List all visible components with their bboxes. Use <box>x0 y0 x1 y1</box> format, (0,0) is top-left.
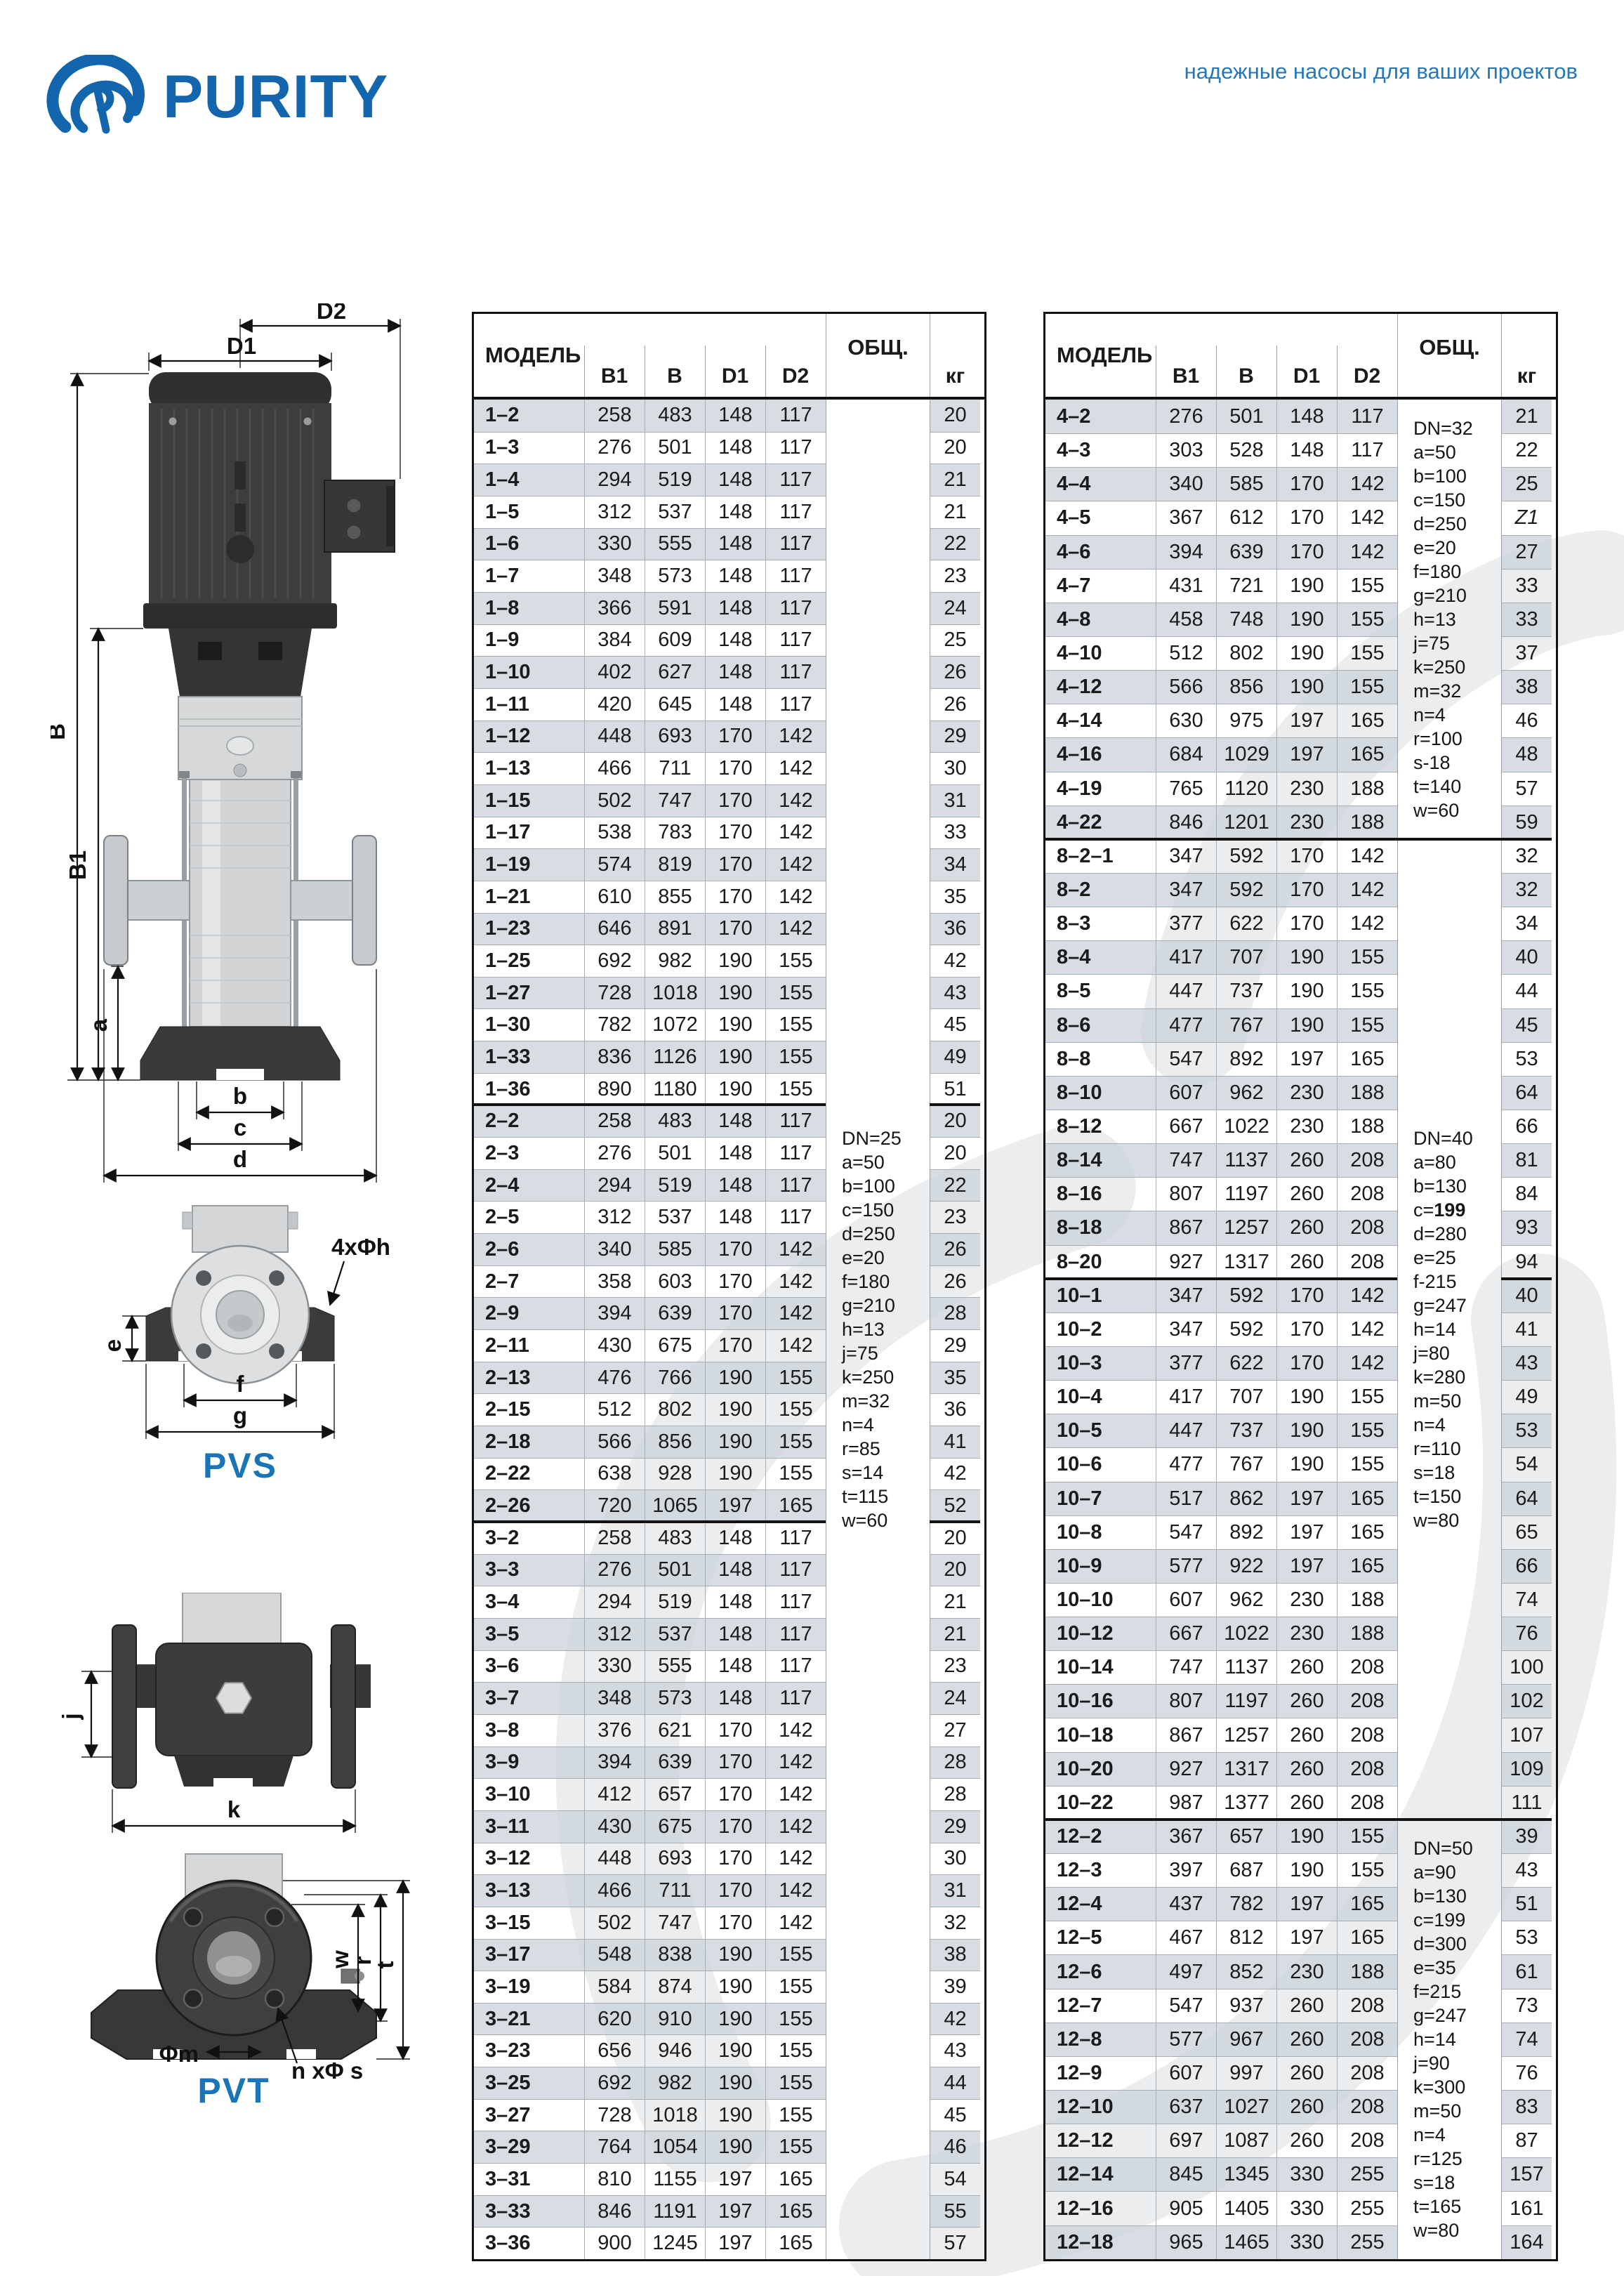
b-cell: 675 <box>645 1329 705 1362</box>
d1-cell: 190 <box>705 945 765 977</box>
d1-cell: 148 <box>1276 433 1337 467</box>
kg-cell: 24 <box>930 1682 980 1714</box>
d2-cell: 155 <box>765 945 826 977</box>
kg-cell: 42 <box>930 1458 980 1490</box>
b1-cell: 347 <box>1156 1279 1216 1313</box>
kg-cell: 49 <box>1501 1380 1552 1414</box>
d2-cell: 155 <box>1337 1853 1397 1887</box>
b-cell: 874 <box>645 1971 705 2003</box>
b-cell: 747 <box>645 1907 705 1939</box>
model-cell: 3–2 <box>474 1522 584 1554</box>
model-cell: 10–2 <box>1045 1313 1156 1346</box>
b-cell: 982 <box>645 2067 705 2099</box>
d2-cell: 155 <box>765 1939 826 1971</box>
model-cell: 8–10 <box>1045 1076 1156 1110</box>
d2-cell: 142 <box>765 1778 826 1810</box>
kg-cell: 35 <box>930 881 980 913</box>
common-dim-line: c=199 <box>1413 1908 1473 1932</box>
d2-cell: 142 <box>765 721 826 753</box>
model-cell: 3–5 <box>474 1618 584 1650</box>
b-cell: 1072 <box>645 1008 705 1041</box>
pvs-dim-label-e: e <box>100 1339 126 1352</box>
b-cell: 1377 <box>1216 1786 1276 1820</box>
model-cell: 12–14 <box>1045 2157 1156 2191</box>
model-cell: 4–7 <box>1045 569 1156 603</box>
d2-cell: 155 <box>765 2003 826 2035</box>
d1-cell: 170 <box>705 1747 765 1779</box>
d2-cell: 188 <box>1337 772 1397 805</box>
model-cell: 12–9 <box>1045 2056 1156 2090</box>
kg-cell: 66 <box>1501 1110 1552 1143</box>
b-cell: 483 <box>645 400 705 432</box>
model-cell: 3–4 <box>474 1586 584 1618</box>
kg-cell: 43 <box>1501 1853 1552 1887</box>
purity-logo: PURITY <box>44 55 388 139</box>
b-cell: 555 <box>645 528 705 560</box>
b1-cell: 638 <box>584 1458 645 1490</box>
b-cell: 609 <box>645 624 705 657</box>
common-dim-line: DN=50 <box>1413 1836 1473 1860</box>
d2-cell: 155 <box>1337 603 1397 636</box>
d2-cell: 117 <box>765 496 826 528</box>
d2-cell: 255 <box>1337 2157 1397 2191</box>
kg-cell: 100 <box>1501 1650 1552 1684</box>
b-cell: 1257 <box>1216 1211 1276 1244</box>
kg-cell: 20 <box>930 1522 980 1554</box>
kg-cell: 55 <box>930 2195 980 2228</box>
d1-cell: 170 <box>705 784 765 817</box>
kg-cell: 27 <box>930 1714 980 1747</box>
common-dim-line: d=280 <box>1413 1222 1473 1246</box>
b-cell: 1018 <box>645 2099 705 2131</box>
d2-cell: 208 <box>1337 2090 1397 2124</box>
d2-cell: 208 <box>1337 1786 1397 1820</box>
model-cell: 4–14 <box>1045 704 1156 737</box>
model-cell: 10–3 <box>1045 1346 1156 1380</box>
common-dim-line: a=50 <box>1413 440 1473 464</box>
kg-cell: 23 <box>930 1201 980 1233</box>
model-cell: 12–5 <box>1045 1921 1156 1954</box>
b1-cell: 258 <box>584 1522 645 1554</box>
d1-cell: 170 <box>1276 873 1337 907</box>
kg-cell: 28 <box>930 1747 980 1779</box>
common-dim-line: n=4 <box>1413 2123 1473 2147</box>
b-cell: 1054 <box>645 2131 705 2163</box>
d2-cell: 255 <box>1337 2225 1397 2259</box>
b-cell: 1022 <box>1216 1110 1276 1143</box>
d1-cell: 170 <box>705 817 765 849</box>
kg-cell: 74 <box>1501 2022 1552 2056</box>
b1-cell: 867 <box>1156 1211 1216 1244</box>
common-dim-line: j=90 <box>1413 2051 1473 2075</box>
kg-cell: 20 <box>930 1137 980 1169</box>
b-cell: 975 <box>1216 704 1276 737</box>
col-header-b1: B1 <box>584 314 645 397</box>
model-cell: 10–1 <box>1045 1279 1156 1313</box>
model-cell: 8–6 <box>1045 1008 1156 1042</box>
b1-cell: 728 <box>584 977 645 1009</box>
b1-cell: 276 <box>584 1554 645 1586</box>
model-cell: 8–16 <box>1045 1177 1156 1211</box>
common-dim-line: w=60 <box>842 1508 902 1532</box>
d2-cell: 155 <box>765 2034 826 2067</box>
d1-cell: 330 <box>1276 2191 1337 2225</box>
d2-cell: 142 <box>765 1747 826 1779</box>
d1-cell: 230 <box>1276 805 1337 839</box>
b-cell: 747 <box>645 784 705 817</box>
b1-cell: 747 <box>1156 1650 1216 1684</box>
kg-cell: 20 <box>930 400 980 432</box>
d2-cell: 188 <box>1337 1076 1397 1110</box>
kg-cell: 43 <box>1501 1346 1552 1380</box>
model-cell: 1–3 <box>474 432 584 464</box>
common-dim-line: s=14 <box>842 1461 902 1485</box>
d2-cell: 208 <box>1337 1718 1397 1751</box>
common-dim-line: DN=25 <box>842 1126 902 1150</box>
d2-cell: 155 <box>1337 1380 1397 1414</box>
model-cell: 12–6 <box>1045 1954 1156 1988</box>
d2-cell: 142 <box>1337 1313 1397 1346</box>
pvt-title: PVT <box>197 2071 270 2110</box>
kg-cell: 29 <box>930 1329 980 1362</box>
col-header-d1: D1 <box>705 314 765 397</box>
b-cell: 537 <box>645 1201 705 1233</box>
d2-cell: 155 <box>765 1393 826 1426</box>
d1-cell: 148 <box>705 1650 765 1683</box>
b1-cell: 303 <box>1156 433 1216 467</box>
model-cell: 1–9 <box>474 624 584 657</box>
b-cell: 1120 <box>1216 772 1276 805</box>
d1-cell: 197 <box>705 1489 765 1522</box>
pvs-dim-label-b-total: B <box>51 723 70 740</box>
kg-cell: 61 <box>1501 1954 1552 1988</box>
b1-cell: 276 <box>584 1137 645 1169</box>
kg-cell: 54 <box>1501 1447 1552 1481</box>
d1-cell: 190 <box>705 2131 765 2163</box>
common-dim-line: k=250 <box>1413 655 1473 679</box>
d2-cell: 165 <box>1337 737 1397 771</box>
common-dim-line: t=115 <box>842 1485 902 1508</box>
b1-cell: 577 <box>1156 2022 1216 2056</box>
model-cell: 10–14 <box>1045 1650 1156 1684</box>
brand-tagline: надежные насосы для ваших проектов <box>1184 59 1578 84</box>
b1-cell: 477 <box>1156 1447 1216 1481</box>
d2-cell: 155 <box>1337 1008 1397 1042</box>
common-dim-line: a=50 <box>842 1150 902 1174</box>
model-cell: 4–3 <box>1045 433 1156 467</box>
d1-cell: 190 <box>705 2034 765 2067</box>
col-header-b: B <box>645 314 705 397</box>
d2-cell: 117 <box>765 560 826 592</box>
d1-cell: 148 <box>705 688 765 721</box>
kg-cell: 33 <box>930 817 980 849</box>
d2-cell: 117 <box>765 1522 826 1554</box>
b-cell: 693 <box>645 1843 705 1875</box>
model-cell: 1–2 <box>474 400 584 432</box>
d2-cell: 155 <box>1337 974 1397 1008</box>
b1-cell: 577 <box>1156 1549 1216 1583</box>
b-cell: 967 <box>1216 2022 1276 2056</box>
d2-cell: 117 <box>765 1201 826 1233</box>
d1-cell: 170 <box>705 721 765 753</box>
model-cell: 8–8 <box>1045 1042 1156 1076</box>
d1-cell: 148 <box>705 1682 765 1714</box>
b-cell: 1029 <box>1216 737 1276 771</box>
b-cell: 483 <box>645 1105 705 1137</box>
d2-cell: 142 <box>765 913 826 945</box>
model-cell: 2–5 <box>474 1201 584 1233</box>
kg-cell: 26 <box>930 656 980 688</box>
common-dim-line: f=180 <box>1413 560 1473 584</box>
d1-cell: 190 <box>705 977 765 1009</box>
b-cell: 1465 <box>1216 2225 1276 2259</box>
d2-cell: 142 <box>1337 535 1397 569</box>
d1-cell: 190 <box>705 2003 765 2035</box>
b-cell: 962 <box>1216 1076 1276 1110</box>
common-dim-line: w=80 <box>1413 2218 1473 2242</box>
common-dim-line: a=80 <box>1413 1150 1473 1174</box>
d2-cell: 142 <box>765 1233 826 1265</box>
d2-cell: 208 <box>1337 2124 1397 2157</box>
common-dim-line: c=150 <box>1413 488 1473 512</box>
d2-cell: 188 <box>1337 1617 1397 1650</box>
b-cell: 519 <box>645 1169 705 1202</box>
d1-cell: 230 <box>1276 1617 1337 1650</box>
b1-cell: 747 <box>1156 1143 1216 1177</box>
kg-cell: 40 <box>1501 940 1552 974</box>
model-cell: 1–36 <box>474 1073 584 1105</box>
model-cell: 3–29 <box>474 2131 584 2163</box>
common-dim-line: w=60 <box>1413 798 1473 822</box>
d2-cell: 142 <box>1337 1346 1397 1380</box>
model-cell: 1–19 <box>474 848 584 881</box>
b1-cell: 502 <box>584 784 645 817</box>
d1-cell: 148 <box>705 1618 765 1650</box>
b-cell: 937 <box>1216 1989 1276 2022</box>
d1-cell: 148 <box>705 1105 765 1137</box>
common-dim-line: e=20 <box>1413 536 1473 560</box>
section-separator <box>1045 838 1552 841</box>
d1-cell: 190 <box>1276 1414 1337 1447</box>
b1-cell: 437 <box>1156 1887 1216 1921</box>
model-cell: 3–10 <box>474 1778 584 1810</box>
table-header-row: МОДЕЛЬB1BD1D2ОБЩ.кг <box>1045 314 1556 400</box>
b1-cell: 620 <box>584 2003 645 2035</box>
col-header-common: ОБЩ. <box>1397 314 1501 397</box>
b1-cell: 347 <box>1156 839 1216 873</box>
kg-cell: 38 <box>1501 670 1552 704</box>
model-cell: 2–22 <box>474 1458 584 1490</box>
dimensions-table-pvt-series: МОДЕЛЬB1BD1D2ОБЩ.кг4–2276501148117214–33… <box>1043 312 1558 2261</box>
d1-cell: 148 <box>705 1586 765 1618</box>
d1-cell: 190 <box>1276 974 1337 1008</box>
b1-cell: 566 <box>584 1426 645 1458</box>
kg-cell: 51 <box>1501 1887 1552 1921</box>
d1-cell: 230 <box>1276 772 1337 805</box>
d2-cell: 188 <box>1337 1583 1397 1617</box>
b1-cell: 347 <box>1156 873 1216 907</box>
b-cell: 767 <box>1216 1008 1276 1042</box>
b1-cell: 258 <box>584 400 645 432</box>
pvs-dim-label-holes: 4xΦh <box>331 1234 390 1260</box>
kg-cell: 24 <box>930 592 980 624</box>
kg-cell: 29 <box>930 1810 980 1843</box>
b-cell: 585 <box>1216 467 1276 501</box>
b1-cell: 294 <box>584 1586 645 1618</box>
b1-cell: 394 <box>584 1747 645 1779</box>
d1-cell: 190 <box>1276 603 1337 636</box>
model-cell: 12–12 <box>1045 2124 1156 2157</box>
d1-cell: 148 <box>705 1137 765 1169</box>
d2-cell: 155 <box>1337 940 1397 974</box>
b1-cell: 667 <box>1156 1110 1216 1143</box>
model-cell: 10–4 <box>1045 1380 1156 1414</box>
kg-cell: 87 <box>1501 2124 1552 2157</box>
d1-cell: 197 <box>1276 1887 1337 1921</box>
d2-cell: 117 <box>765 1682 826 1714</box>
model-cell: 8–14 <box>1045 1143 1156 1177</box>
d1-cell: 260 <box>1276 2056 1337 2090</box>
d2-cell: 208 <box>1337 2056 1397 2090</box>
common-dim-line: m=32 <box>1413 679 1473 703</box>
kg-cell: 94 <box>1501 1245 1552 1279</box>
d2-cell: 165 <box>765 2163 826 2195</box>
d2-cell: 208 <box>1337 1650 1397 1684</box>
b1-cell: 340 <box>1156 467 1216 501</box>
common-dim-line: s-18 <box>1413 751 1473 775</box>
model-cell: 3–6 <box>474 1650 584 1683</box>
d1-cell: 190 <box>1276 636 1337 670</box>
common-dim-line: m=50 <box>1413 1389 1473 1413</box>
b1-cell: 547 <box>1156 1989 1216 2022</box>
kg-cell: 37 <box>1501 636 1552 670</box>
d1-cell: 230 <box>1276 1954 1337 1988</box>
d2-cell: 155 <box>765 1458 826 1490</box>
d1-cell: 197 <box>705 2163 765 2195</box>
d2-cell: 117 <box>765 688 826 721</box>
common-dim-line: r=85 <box>842 1437 902 1461</box>
b-cell: 862 <box>1216 1482 1276 1515</box>
model-cell: 1–33 <box>474 1041 584 1073</box>
b1-cell: 900 <box>584 2227 645 2259</box>
kg-cell: 39 <box>1501 1820 1552 1853</box>
d2-cell: 208 <box>1337 1245 1397 1279</box>
col-header-model: МОДЕЛЬ <box>1045 314 1156 397</box>
common-dim-line: g=247 <box>1413 1294 1473 1317</box>
b-cell: 891 <box>645 913 705 945</box>
col-header-common: ОБЩ. <box>826 314 930 397</box>
pvt-dim-label-holes: n xΦ s <box>291 2058 363 2084</box>
model-cell: 1–5 <box>474 496 584 528</box>
b-cell: 783 <box>645 817 705 849</box>
model-cell: 1–17 <box>474 817 584 849</box>
model-cell: 3–12 <box>474 1843 584 1875</box>
model-cell: 1–12 <box>474 721 584 753</box>
kg-cell: 31 <box>930 784 980 817</box>
common-dim-line: DN=40 <box>1413 1126 1473 1150</box>
b1-cell: 420 <box>584 688 645 721</box>
model-cell: 12–18 <box>1045 2225 1156 2259</box>
b-cell: 1137 <box>1216 1143 1276 1177</box>
common-dimensions-note: DN=32a=50b=100c=150d=250e=20f=180g=210h=… <box>1398 400 1501 839</box>
model-cell: 8–2–1 <box>1045 839 1156 873</box>
kg-cell: 76 <box>1501 1617 1552 1650</box>
d2-cell: 142 <box>765 817 826 849</box>
model-cell: 8–3 <box>1045 907 1156 940</box>
model-cell: 3–21 <box>474 2003 584 2035</box>
d1-cell: 190 <box>705 2067 765 2099</box>
b-cell: 519 <box>645 1586 705 1618</box>
d2-cell: 117 <box>1337 400 1397 433</box>
model-cell: 10–8 <box>1045 1515 1156 1549</box>
b1-cell: 610 <box>584 881 645 913</box>
kg-cell: 25 <box>1501 467 1552 501</box>
b1-cell: 447 <box>1156 1414 1216 1447</box>
d1-cell: 148 <box>705 400 765 432</box>
common-dim-line: n=4 <box>1413 1413 1473 1437</box>
kg-cell: 84 <box>1501 1177 1552 1211</box>
model-cell: 1–23 <box>474 913 584 945</box>
common-dim-line: g=210 <box>842 1294 902 1317</box>
col-header-b1: B1 <box>1156 314 1216 397</box>
common-dim-line: m=50 <box>1413 2099 1473 2123</box>
b-cell: 591 <box>645 592 705 624</box>
b-cell: 639 <box>645 1747 705 1779</box>
kg-cell: 40 <box>1501 1279 1552 1313</box>
b-cell: 812 <box>1216 1921 1276 1954</box>
kg-cell: 22 <box>1501 433 1552 467</box>
b-cell: 657 <box>1216 1820 1276 1853</box>
d2-cell: 142 <box>1337 467 1397 501</box>
kg-cell: 41 <box>1501 1313 1552 1346</box>
b-cell: 766 <box>645 1362 705 1394</box>
d1-cell: 190 <box>1276 670 1337 704</box>
d1-cell: 148 <box>705 463 765 496</box>
b1-cell: 376 <box>584 1714 645 1747</box>
d1-cell: 148 <box>705 656 765 688</box>
kg-cell: 111 <box>1501 1786 1552 1820</box>
model-cell: 1–10 <box>474 656 584 688</box>
model-cell: 12–3 <box>1045 1853 1156 1887</box>
d1-cell: 260 <box>1276 2124 1337 2157</box>
b1-cell: 927 <box>1156 1245 1216 1279</box>
d2-cell: 117 <box>765 1169 826 1202</box>
d1-cell: 170 <box>705 1843 765 1875</box>
b-cell: 592 <box>1216 873 1276 907</box>
d2-cell: 155 <box>1337 670 1397 704</box>
d2-cell: 117 <box>765 432 826 464</box>
b-cell: 1191 <box>645 2195 705 2228</box>
b1-cell: 807 <box>1156 1684 1216 1718</box>
pvs-dim-label-f: f <box>237 1371 245 1397</box>
b-cell: 501 <box>645 1137 705 1169</box>
page-header: PURITY надежные насосы для ваших проекто… <box>0 0 1624 162</box>
d2-cell: 165 <box>765 2227 826 2259</box>
model-cell: 8–5 <box>1045 974 1156 1008</box>
b1-cell: 927 <box>1156 1752 1216 1786</box>
d2-cell: 142 <box>765 1714 826 1747</box>
d2-cell: 142 <box>1337 907 1397 940</box>
b1-cell: 312 <box>584 496 645 528</box>
d2-cell: 165 <box>1337 1887 1397 1921</box>
d1-cell: 260 <box>1276 2022 1337 2056</box>
model-cell: 10–10 <box>1045 1583 1156 1617</box>
d2-cell: 155 <box>1337 1820 1397 1853</box>
d2-cell: 155 <box>765 1971 826 2003</box>
d1-cell: 170 <box>1276 501 1337 534</box>
b1-cell: 417 <box>1156 940 1216 974</box>
b1-cell: 366 <box>584 592 645 624</box>
